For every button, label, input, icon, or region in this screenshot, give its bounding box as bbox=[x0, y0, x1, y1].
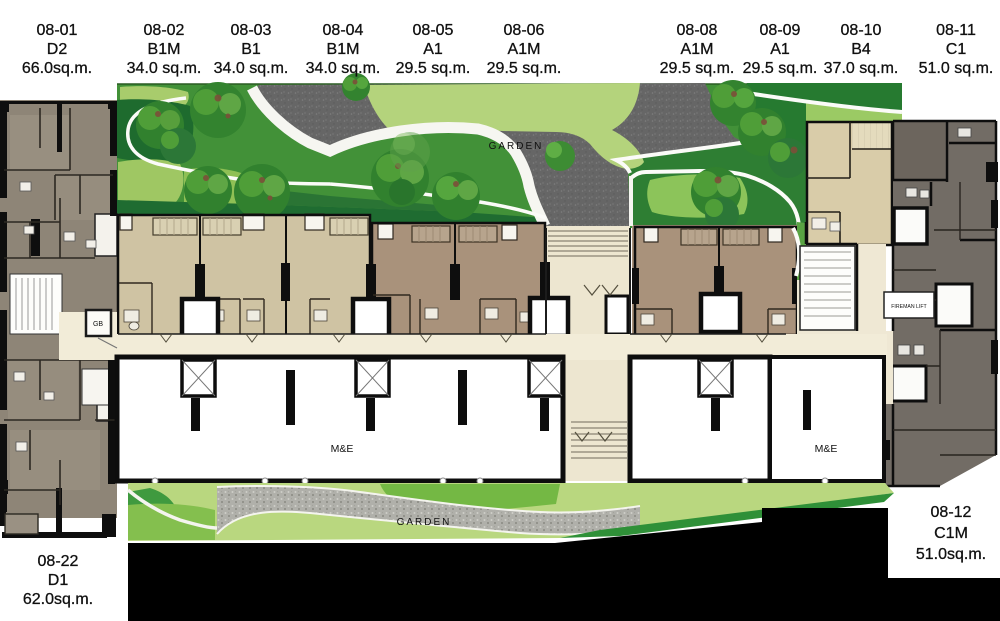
svg-text:29.5 sq.m.: 29.5 sq.m. bbox=[487, 60, 562, 77]
svg-text:08-04: 08-04 bbox=[323, 22, 364, 39]
svg-text:D1: D1 bbox=[48, 572, 69, 589]
svg-text:B1M: B1M bbox=[148, 41, 181, 58]
svg-text:GARDEN: GARDEN bbox=[489, 141, 544, 152]
svg-text:37.0 sq.m.: 37.0 sq.m. bbox=[824, 60, 899, 77]
svg-text:08-03: 08-03 bbox=[231, 22, 272, 39]
svg-text:D2: D2 bbox=[47, 41, 68, 58]
svg-text:08-22: 08-22 bbox=[38, 553, 79, 570]
svg-text:A1M: A1M bbox=[508, 41, 541, 58]
svg-text:08-12: 08-12 bbox=[931, 504, 972, 521]
svg-text:51.0sq.m.: 51.0sq.m. bbox=[916, 546, 986, 563]
svg-text:M&E: M&E bbox=[331, 443, 354, 455]
svg-text:34.0 sq.m.: 34.0 sq.m. bbox=[306, 60, 381, 77]
svg-text:66.0sq.m.: 66.0sq.m. bbox=[22, 60, 92, 77]
svg-text:34.0 sq.m.: 34.0 sq.m. bbox=[127, 60, 202, 77]
svg-text:62.0sq.m.: 62.0sq.m. bbox=[23, 591, 93, 608]
svg-text:08-02: 08-02 bbox=[144, 22, 185, 39]
svg-text:FIREMAN LIFT: FIREMAN LIFT bbox=[891, 304, 927, 310]
svg-text:08-09: 08-09 bbox=[760, 22, 801, 39]
svg-text:08-11: 08-11 bbox=[936, 22, 976, 39]
svg-text:29.5 sq.m.: 29.5 sq.m. bbox=[396, 60, 471, 77]
svg-text:08-10: 08-10 bbox=[841, 22, 882, 39]
svg-text:08-08: 08-08 bbox=[677, 22, 718, 39]
svg-text:A1: A1 bbox=[423, 41, 443, 58]
svg-text:29.5 sq.m.: 29.5 sq.m. bbox=[660, 60, 735, 77]
svg-text:08-05: 08-05 bbox=[413, 22, 454, 39]
svg-text:M&E: M&E bbox=[815, 443, 838, 455]
svg-text:B4: B4 bbox=[851, 41, 871, 58]
svg-text:C1M: C1M bbox=[934, 525, 968, 542]
svg-text:C1: C1 bbox=[946, 41, 967, 58]
svg-text:GARDEN: GARDEN bbox=[397, 517, 452, 528]
svg-text:GB: GB bbox=[93, 321, 103, 328]
svg-text:B1M: B1M bbox=[327, 41, 360, 58]
svg-text:08-01: 08-01 bbox=[37, 22, 78, 39]
svg-text:A1M: A1M bbox=[681, 41, 714, 58]
svg-text:A1: A1 bbox=[770, 41, 790, 58]
svg-text:29.5 sq.m.: 29.5 sq.m. bbox=[743, 60, 818, 77]
svg-text:51.0 sq.m.: 51.0 sq.m. bbox=[919, 60, 994, 77]
svg-text:08-06: 08-06 bbox=[504, 22, 545, 39]
svg-text:34.0 sq.m.: 34.0 sq.m. bbox=[214, 60, 289, 77]
svg-text:B1: B1 bbox=[241, 41, 261, 58]
